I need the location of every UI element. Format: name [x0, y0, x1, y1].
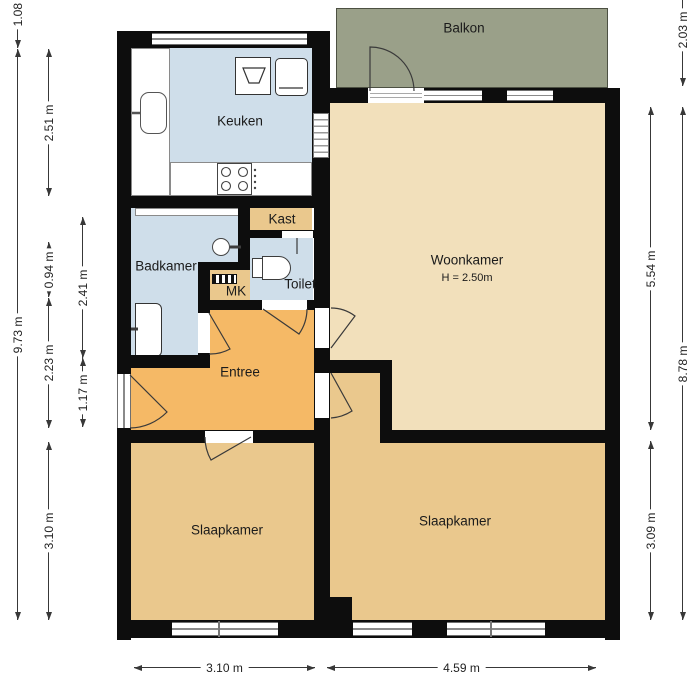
dim-label: 2.41 m [76, 266, 90, 309]
dim-arrow [680, 78, 686, 86]
dim-arrow [80, 217, 86, 225]
door-swing-overlay [0, 0, 700, 700]
bedroom-right-door-swing [331, 373, 352, 418]
dim-arrow [648, 422, 654, 430]
dim-arrow [80, 358, 86, 366]
burner [239, 182, 248, 191]
room-label-slaapkamer-left: Slaapkamer [191, 523, 263, 538]
dim-label: 8.78 m [676, 342, 690, 385]
stove-knob [254, 169, 256, 171]
dim-right-slaapkamer: 3.09 m [650, 441, 651, 620]
dim-left-keuken: 2.51 m [48, 49, 49, 196]
dim-left-mk: 0.94 m [48, 242, 49, 297]
burner [222, 182, 231, 191]
dim-arrow [648, 441, 654, 449]
dim-left-total: 9.73 m [17, 49, 18, 620]
room-label-entree: Entree [220, 365, 260, 380]
room-label-keuken: Keuken [217, 114, 263, 129]
dim-arrow [46, 612, 52, 620]
dim-arrow [80, 419, 86, 427]
dim-label: 2.03 m [676, 9, 690, 52]
dim-arrow [46, 49, 52, 57]
dim-arrow [588, 665, 596, 671]
dim-right-balkon: 2.03 m [682, 0, 683, 86]
stove-knob [254, 187, 256, 189]
dim-bottom-right: 4.59 m [327, 667, 596, 668]
room-label-slaapkamer-right: Slaapkamer [419, 514, 491, 529]
dim-label: 9.73 m [11, 313, 25, 356]
dim-arrow [648, 107, 654, 115]
living-room-door-swing [331, 308, 355, 348]
dim-bottom-left: 3.10 m [134, 667, 315, 668]
dim-arrow [46, 298, 52, 306]
dim-right-woonkamer: 5.54 m [650, 107, 651, 430]
dim-arrow [680, 612, 686, 620]
dim-arrow [46, 188, 52, 196]
dim-arrow [15, 612, 21, 620]
dim-arrow [680, 107, 686, 115]
dim-left-badkamer: 2.41 m [82, 217, 83, 358]
dim-label: 1.08 m [11, 0, 25, 29]
burner [239, 168, 248, 177]
dim-arrow [15, 49, 21, 57]
dim-label: 5.54 m [644, 247, 658, 290]
burner [222, 168, 231, 177]
laundry-glyph [243, 68, 265, 83]
dim-arrow [134, 665, 142, 671]
front-door-swing [130, 375, 167, 428]
dim-left-slaapkamer: 3.10 m [48, 442, 49, 620]
room-label-badkamer: Badkamer [135, 259, 197, 274]
floorplan: Balkon Keuken Woonkamer H = 2.50m Kast B… [0, 0, 700, 700]
dim-label: 1.17 m [76, 371, 90, 414]
dim-arrow [80, 350, 86, 358]
dim-label: 3.10 m [200, 661, 249, 675]
room-label-woonkamer-height: H = 2.50m [441, 272, 492, 284]
toilet-door-swing [263, 309, 307, 334]
dim-label: 4.59 m [437, 661, 486, 675]
dim-left-entree: 2.23 m [48, 298, 49, 428]
room-label-woonkamer: Woonkamer [431, 253, 504, 268]
stove-knob [254, 181, 256, 183]
dim-arrow [327, 665, 335, 671]
bedroom-left-door-swing [205, 437, 251, 460]
room-label-kast: Kast [268, 212, 295, 227]
dim-label: 2.23 m [42, 342, 56, 385]
room-label-toilet: Toilet [284, 277, 316, 292]
dim-label: 0.94 m [42, 248, 56, 291]
balcony-door-swing [370, 47, 414, 91]
stove-knob [254, 175, 256, 177]
dim-arrow [46, 442, 52, 450]
dim-left-outer-top: 1.08 m [17, 0, 18, 48]
dim-arrow [648, 612, 654, 620]
dim-right-total: 8.78 m [682, 107, 683, 620]
dim-arrow [307, 665, 315, 671]
room-label-mk: MK [226, 284, 246, 299]
room-label-balkon: Balkon [443, 21, 484, 36]
dim-arrow [46, 420, 52, 428]
dim-left-hal: 1.17 m [82, 358, 83, 427]
dim-label: 3.10 m [42, 510, 56, 553]
dim-label: 2.51 m [42, 101, 56, 144]
dim-label: 3.09 m [644, 509, 658, 552]
bathroom-door-swing [209, 313, 230, 354]
dim-arrow [15, 40, 21, 48]
